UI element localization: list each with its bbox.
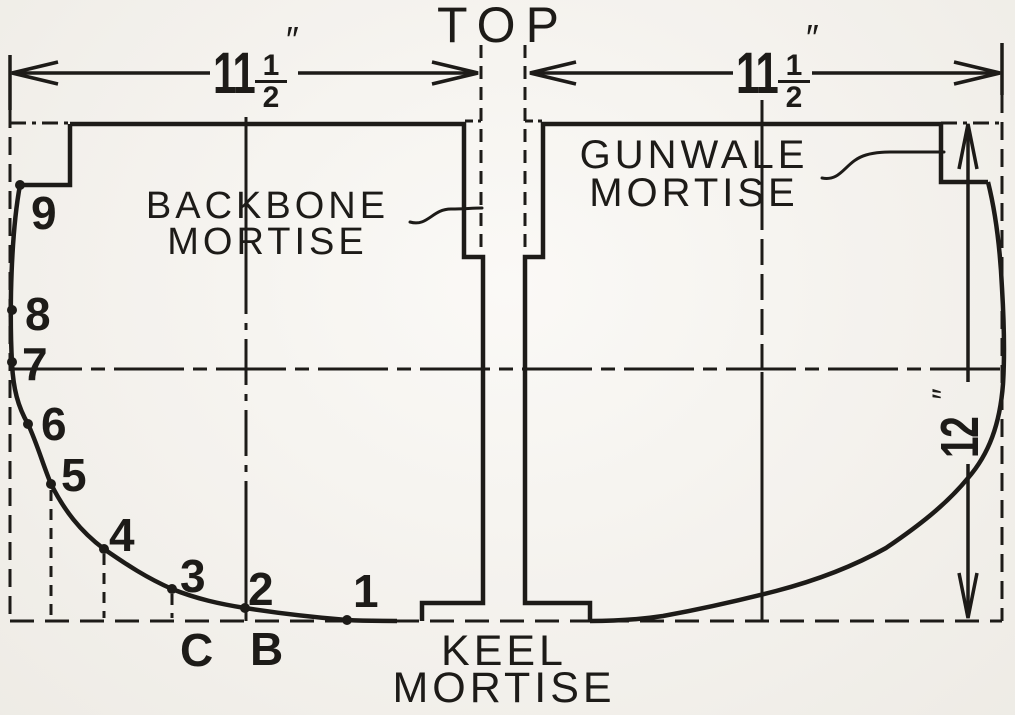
station-label-2: 2	[248, 566, 274, 612]
station-label-8: 8	[25, 291, 51, 337]
station-dot-4	[99, 544, 109, 554]
dimension-left-unit: ″	[286, 22, 299, 58]
gunwale-mortise-leader	[822, 152, 944, 179]
station-dot-7	[7, 357, 17, 367]
station-dot-9	[15, 180, 25, 190]
gunwale-mortise-line1: GUNWALE	[553, 136, 835, 174]
gunwale-mortise-line2: MORTISE	[553, 174, 835, 212]
mold-plan-linework	[0, 0, 1015, 715]
station-label-7: 7	[22, 341, 48, 387]
station-dot-5	[46, 479, 56, 489]
buttock-label-c: C	[180, 627, 213, 673]
backbone-mortise-leader	[410, 208, 482, 223]
station-label-3: 3	[180, 553, 206, 599]
diagram-page: TOP 11 1 2 ″ 11 1 2 ″ 12 ″ BACKBONE MORT…	[0, 0, 1015, 715]
keel-mortise-line2: MORTISE	[390, 670, 618, 707]
dimension-right-whole: 11	[736, 45, 777, 103]
buttock-label-b: B	[250, 626, 283, 672]
dimension-height	[959, 124, 977, 618]
station-label-1: 1	[353, 568, 379, 614]
station-dot-1	[342, 615, 352, 625]
station-label-9: 9	[31, 190, 57, 236]
dimension-right-fraction: 1 2	[778, 52, 810, 112]
fraction-denominator: 2	[255, 83, 287, 112]
top-label: TOP	[398, 0, 608, 50]
dimension-height-value: 12	[929, 417, 991, 457]
backbone-mortise-line1: BACKBONE	[115, 188, 420, 224]
station-label-4: 4	[109, 512, 135, 558]
station-label-6: 6	[41, 401, 67, 447]
fraction-denominator: 2	[778, 83, 810, 112]
dimension-left-whole: 11	[213, 45, 254, 103]
keel-mortise-label: KEEL MORTISE	[390, 633, 618, 707]
backbone-mortise-label: BACKBONE MORTISE	[115, 188, 420, 260]
gunwale-mortise-label: GUNWALE MORTISE	[553, 136, 835, 212]
backbone-mortise-line2: MORTISE	[115, 224, 420, 260]
dimension-left-fraction: 1 2	[255, 52, 287, 112]
left-half-gunwale-notch	[20, 124, 70, 185]
fraction-numerator: 1	[255, 52, 287, 83]
dimension-text-height: 12 ″	[921, 379, 999, 467]
station-dot-8	[7, 305, 17, 315]
dimension-right-unit: ″	[806, 20, 819, 56]
station-label-5: 5	[61, 452, 87, 498]
station-dot-6	[23, 419, 33, 429]
station-dot-3	[167, 584, 177, 594]
dimension-height-unit: ″	[926, 388, 963, 399]
